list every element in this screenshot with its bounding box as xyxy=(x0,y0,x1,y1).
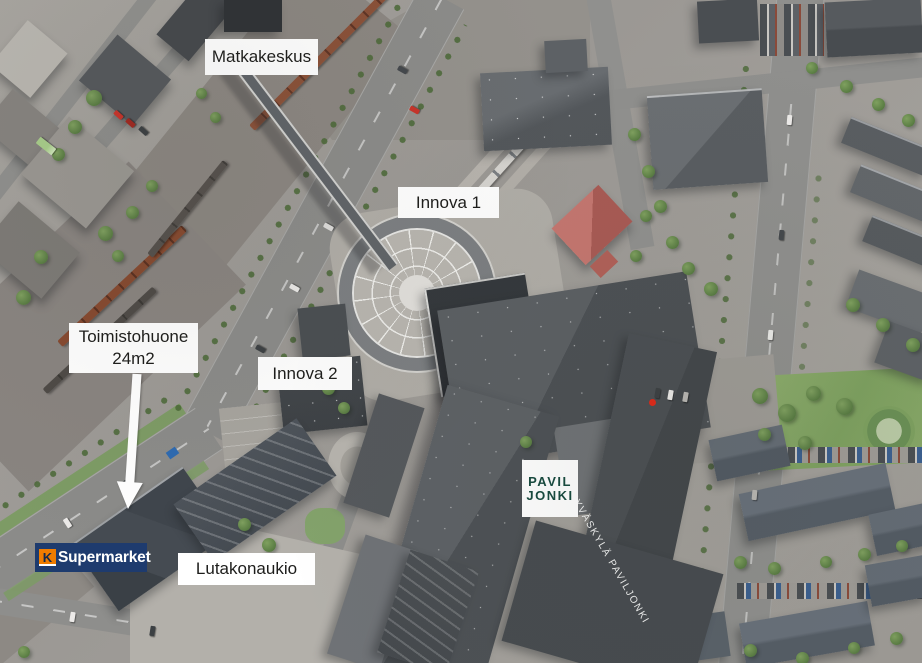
tree xyxy=(778,404,796,422)
k-logo-icon: K xyxy=(39,549,56,566)
tree xyxy=(752,388,768,404)
label-toimistohuone-line1: Toimistohuone xyxy=(79,326,189,348)
label-lutakonaukio: Lutakonaukio xyxy=(178,553,315,585)
car xyxy=(752,490,758,500)
tree xyxy=(734,556,747,569)
tree xyxy=(836,398,853,415)
tree xyxy=(806,386,821,401)
tree xyxy=(858,548,871,561)
tree xyxy=(238,518,251,531)
tree xyxy=(262,538,276,552)
car xyxy=(779,230,785,240)
tree xyxy=(682,262,695,275)
k-supermarket-sign: K Supermarket xyxy=(35,543,147,572)
building xyxy=(0,20,68,98)
rowhouse xyxy=(862,215,922,277)
label-innova-2: Innova 2 xyxy=(258,357,352,390)
tree xyxy=(640,210,652,222)
paviljonki-logo-line2: JONKI xyxy=(526,489,573,503)
tree xyxy=(758,428,771,441)
tree xyxy=(630,250,642,262)
paviljonki-logo: PAVIL JONKI xyxy=(522,460,578,517)
building xyxy=(825,0,922,57)
label-toimistohuone-line2: 24m2 xyxy=(112,348,155,370)
tree xyxy=(338,402,350,414)
label-toimistohuone: Toimistohuone 24m2 xyxy=(69,323,198,373)
tree xyxy=(890,632,903,645)
red-dot-marker xyxy=(649,399,656,406)
tree xyxy=(704,282,718,296)
satellite-map: JYVÄSKYLÄ PAVILJONKI PAVIL JONKI K Super… xyxy=(0,0,922,663)
building xyxy=(647,88,768,190)
car xyxy=(787,115,793,125)
lawn xyxy=(305,508,345,544)
building xyxy=(79,35,171,126)
tree xyxy=(520,436,532,448)
red-roof-building xyxy=(552,185,633,265)
tree xyxy=(840,80,853,93)
label-matkakeskus: Matkakeskus xyxy=(205,39,318,75)
tree xyxy=(18,646,30,658)
building xyxy=(480,67,612,152)
tree xyxy=(666,236,679,249)
residential-building xyxy=(865,555,922,606)
paviljonki-logo-line1: PAVIL xyxy=(528,475,572,489)
tree xyxy=(876,318,890,332)
building xyxy=(544,39,588,73)
car xyxy=(768,330,774,340)
tree xyxy=(98,226,113,241)
tree xyxy=(796,652,809,663)
tree xyxy=(872,98,885,111)
tree xyxy=(642,165,655,178)
paviljonki-hall-south xyxy=(502,521,724,663)
tree xyxy=(896,540,908,552)
building xyxy=(697,0,759,44)
tree xyxy=(196,88,207,99)
tree xyxy=(628,128,641,141)
building xyxy=(297,304,350,361)
car xyxy=(138,126,149,136)
tree xyxy=(86,90,102,106)
tree xyxy=(806,62,818,74)
tree xyxy=(768,562,781,575)
tree xyxy=(846,298,860,312)
tree xyxy=(34,250,48,264)
building xyxy=(224,0,282,32)
tree xyxy=(146,180,158,192)
tree xyxy=(16,290,31,305)
tree xyxy=(848,642,860,654)
k-supermarket-name: Supermarket xyxy=(58,549,151,567)
label-innova-1: Innova 1 xyxy=(398,187,499,218)
tree xyxy=(126,206,139,219)
tree xyxy=(744,644,757,657)
tree xyxy=(68,120,82,134)
tree xyxy=(798,436,812,450)
tree xyxy=(654,200,667,213)
parking-lot-top-right xyxy=(760,4,824,56)
tree xyxy=(820,556,832,568)
tree xyxy=(210,112,221,123)
tree xyxy=(902,114,915,127)
tree xyxy=(906,338,920,352)
tree xyxy=(112,250,124,262)
